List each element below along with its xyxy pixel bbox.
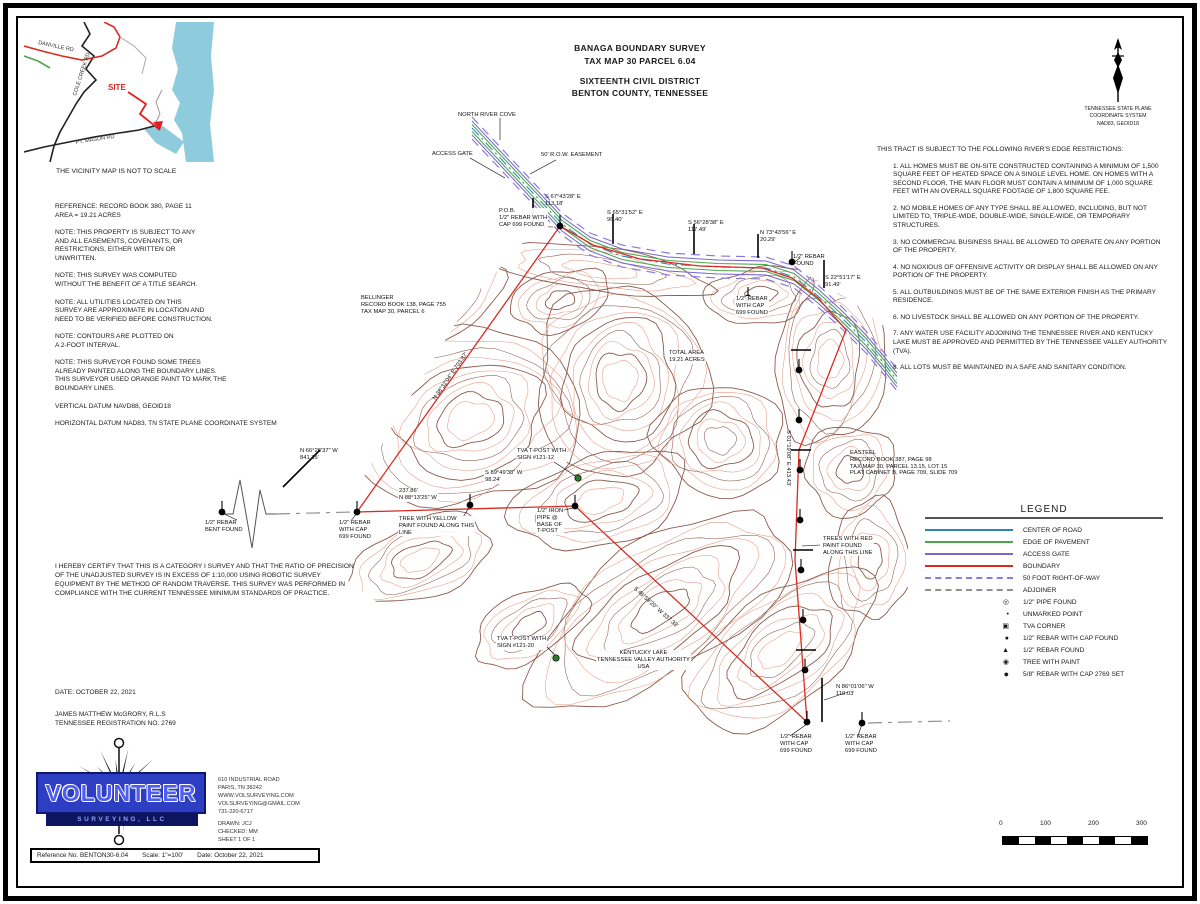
legend-label: TVA CORNER xyxy=(1023,623,1065,630)
unmarked-point-icon: • xyxy=(925,611,1013,618)
iron-pipe-label: 1/2" IRON PIPE @ BASE OF T-POST xyxy=(536,508,564,535)
access-gate-line xyxy=(925,553,1013,555)
footer-reference: Reference No. BENTON30-6.04 xyxy=(37,852,128,859)
restrictions-header: THIS TRACT IS SUBJECT TO THE FOLLOWING R… xyxy=(877,146,1169,155)
bearing-sw-label: S 89°49'38" W 98.24' xyxy=(484,470,523,484)
company-address: 610 INDUSTRIAL ROAD PARIS, TN 38242 WWW.… xyxy=(218,776,328,817)
tva-tpost2-label: TVA T-POST WITH SIGN #121-20 xyxy=(496,636,547,650)
address-line: 610 INDUSTRIAL ROAD xyxy=(218,776,328,784)
legend-label: 1/2" REBAR FOUND xyxy=(1023,647,1084,654)
rebar-south1-label: 1/2" REBAR WITH CAP 699 FOUND xyxy=(780,734,812,754)
legend-title: LEGEND xyxy=(925,504,1163,519)
pt-mason-rd-label: PT. MASON RD xyxy=(75,134,115,146)
bearing-south-label: N 86°01'06" W 110.03' xyxy=(836,684,874,698)
legend-label: 5/8" REBAR WITH CAP 2769 SET xyxy=(1023,671,1124,678)
tva-corner-icon: ▣ xyxy=(925,622,1013,630)
restriction-5: 5. ALL OUTBUILDINGS MUST BE OF THE SAME … xyxy=(893,289,1169,306)
edge-of-pavement-line xyxy=(925,541,1013,543)
surveyor-name: JAMES MATTHEW McGRORY, R.L.S xyxy=(55,710,166,719)
east-bearing-label: S 01°19'08" E 413.43' xyxy=(784,430,791,486)
footer-scale: Scale: 1"=100' xyxy=(142,852,183,859)
scale-tick-0: 0 xyxy=(999,820,1003,827)
legend-row: BOUNDARY xyxy=(925,560,1163,572)
legend-label: CENTER OF ROAD xyxy=(1023,527,1082,534)
tva-tpost1-label: TVA T-POST WITH SIGN #121-12 xyxy=(516,448,567,462)
site-label: SITE xyxy=(108,83,126,92)
date-line: DATE: OCTOBER 22, 2021 xyxy=(55,688,136,697)
trees-red-paint-label: TREES WITH RED PAINT FOUND ALONG THIS LI… xyxy=(822,536,874,556)
vicinity-road-green xyxy=(24,56,50,68)
vicinity-map: SITE DANVILLE RD COLE CREEK RD PT. MASON… xyxy=(24,22,250,162)
title-line-4: BENTON COUNTY, TENNESSEE xyxy=(490,87,790,100)
address-line: PARIS, TN 38242 xyxy=(218,784,328,792)
legend-row: ADJOINER xyxy=(925,584,1163,596)
surveyor-registration: TENNESSEE REGISTRATION NO. 2769 xyxy=(55,719,176,728)
legend: LEGEND CENTER OF ROAD EDGE OF PAVEMENT A… xyxy=(925,504,1163,680)
note-trees: NOTE: THIS SURVEYOR FOUND SOME TREES ALR… xyxy=(55,359,323,393)
note-title-search: NOTE: THIS SURVEY WAS COMPUTED WITHOUT T… xyxy=(55,272,323,289)
footer-title-bar: Reference No. BENTON30-6.04 Scale: 1"=10… xyxy=(30,848,320,863)
note-utilities: NOTE: ALL UTILITIES LOCATED ON THIS SURV… xyxy=(55,299,323,325)
rebar-cap-set-icon: ● xyxy=(925,669,1013,679)
vicinity-road-minor2 xyxy=(120,37,146,74)
total-area-label: TOTAL AREA 19.21 ACRES xyxy=(668,350,706,364)
note-contours: NOTE: CONTOURS ARE PLOTTED ON A 2-FOOT I… xyxy=(55,333,323,350)
title-spacer xyxy=(490,68,790,75)
tree-with-paint-icon: ◉ xyxy=(925,658,1013,666)
legend-label: ACCESS GATE xyxy=(1023,551,1069,558)
legend-row: ●1/2" REBAR WITH CAP FOUND xyxy=(925,632,1163,644)
address-line: WWW.VOLSURVEYING.COM xyxy=(218,792,328,800)
legend-row: ▲1/2" REBAR FOUND xyxy=(925,644,1163,656)
pipe-found-icon: ◎ xyxy=(925,598,1013,606)
legend-row: CENTER OF ROAD xyxy=(925,524,1163,536)
legend-label: 1/2" PIPE FOUND xyxy=(1023,599,1077,606)
restriction-2: 2. NO MOBILE HOMES OF ANY TYPE SHALL BE … xyxy=(893,205,1169,231)
legend-row: ◎1/2" PIPE FOUND xyxy=(925,596,1163,608)
legend-label: EDGE OF PAVEMENT xyxy=(1023,539,1090,546)
restriction-3: 3. NO COMMERCIAL BUSINESS SHALL BE ALLOW… xyxy=(893,239,1169,256)
legend-label: 1/2" REBAR WITH CAP FOUND xyxy=(1023,635,1118,642)
restriction-6: 6. NO LIVESTOCK SHALL BE ALLOWED ON ANY … xyxy=(893,314,1169,323)
legend-row: ◉TREE WITH PAINT xyxy=(925,656,1163,668)
restriction-4: 4. NO NOXIOUS OF OFFENSIVE ACTIVITY OR D… xyxy=(893,264,1169,281)
legend-row: ▣TVA CORNER xyxy=(925,620,1163,632)
pob-label: P.O.B. 1/2" REBAR WITH CAP 699 FOUND xyxy=(498,208,548,228)
footer-date: Date: October 22, 2021 xyxy=(197,852,263,859)
sheet-number: SHEET 1 OF 1 xyxy=(218,836,328,844)
scale-tick-300: 300 xyxy=(1136,820,1147,827)
bearing-label-2: S 65°31'52" E 96.40' xyxy=(607,210,643,224)
note-vertical-datum: VERTICAL DATUM NAVD88, GEOID18 xyxy=(55,403,323,412)
legend-row: 50 FOOT RIGHT-OF-WAY xyxy=(925,572,1163,584)
rebar-cap-west-label: 1/2" REBAR WITH CAP 699 FOUND xyxy=(338,520,372,540)
notes-block: REFERENCE: RECORD BOOK 380, PAGE 11 AREA… xyxy=(55,203,323,438)
legend-label: ADJOINER xyxy=(1023,587,1056,594)
bearing-label-4: N 73°43'56" E 20.29' xyxy=(760,230,796,244)
easteel-adjoiner-label: EASTEEL RECORD BOOK 387, PAGE 98 TAX MAP… xyxy=(850,450,958,477)
vicinity-caption: THE VICINITY MAP IS NOT TO SCALE xyxy=(56,168,176,175)
legend-row: •UNMARKED POINT xyxy=(925,608,1163,620)
rebar-south2-label: 1/2" REBAR WITH CAP 699 FOUND xyxy=(845,734,877,754)
title-line-3: SIXTEENTH CIVIL DISTRICT xyxy=(490,75,790,88)
scale-tick-200: 200 xyxy=(1088,820,1099,827)
legend-label: 50 FOOT RIGHT-OF-WAY xyxy=(1023,575,1100,582)
bearing-west-label: N 66°28'37" W 841.35' xyxy=(300,448,338,462)
title-line-2: TAX MAP 30 PARCEL 6.04 xyxy=(490,55,790,68)
drawing-credits: DRAWN: JCJ CHECKED: MM SHEET 1 OF 1 xyxy=(218,820,328,844)
drawn-by: DRAWN: JCJ xyxy=(218,820,328,828)
legend-row: EDGE OF PAVEMENT xyxy=(925,536,1163,548)
row-easement-label: 50' R.O.W. EASEMENT xyxy=(541,152,602,159)
boundary-line xyxy=(925,565,1013,567)
legend-row: ●5/8" REBAR WITH CAP 2769 SET xyxy=(925,668,1163,680)
tree-yellow-paint-label: TREE WITH YELLOW PAINT FOUND ALONG THIS … xyxy=(398,516,475,536)
rebar-cap-ne-label: 1/2" REBAR WITH CAP 699 FOUND xyxy=(735,296,769,316)
access-gate-label: ACCESS GATE xyxy=(432,151,473,158)
legend-label: BOUNDARY xyxy=(1023,563,1060,570)
rebar-bent-label: 1/2" REBAR BENT FOUND xyxy=(205,520,243,534)
legend-label: UNMARKED POINT xyxy=(1023,611,1083,618)
restriction-8: 8. ALL LOTS MUST BE MAINTAINED IN A SAFE… xyxy=(893,364,1169,373)
rebar-found-label: 1/2" REBAR FOUND xyxy=(793,254,825,268)
bearing-label-5: S 22°51'17" E 91.49' xyxy=(825,275,861,289)
kentucky-lake-label: KENTUCKY LAKE TENNESSEE VALLEY AUTHORITY… xyxy=(596,650,691,670)
logo-box: VOLUNTEER xyxy=(36,772,206,814)
center-of-road-line xyxy=(925,529,1013,531)
title-line-1: BANAGA BOUNDARY SURVEY xyxy=(490,42,790,55)
restrictions-block: THIS TRACT IS SUBJECT TO THE FOLLOWING R… xyxy=(877,146,1169,373)
checked-by: CHECKED: MM xyxy=(218,828,328,836)
bearing-label-3: S 56°28'38" E 117.49' xyxy=(688,220,724,234)
rebar-found-icon: ▲ xyxy=(925,647,1013,654)
road-name-label: NORTH RIVER COVE xyxy=(458,112,516,119)
right-of-way-line xyxy=(925,577,1013,579)
note-reference: REFERENCE: RECORD BOOK 380, PAGE 11 AREA… xyxy=(55,203,323,220)
logo-subname: SURVEYING, LLC xyxy=(46,812,198,826)
logo-name: VOLUNTEER xyxy=(46,780,197,807)
title-block: BANAGA BOUNDARY SURVEY TAX MAP 30 PARCEL… xyxy=(490,42,790,100)
bearing-mid-label: 237.86' N 88°13'25" W xyxy=(398,488,438,502)
survey-sheet: SITE DANVILLE RD COLE CREEK RD PT. MASON… xyxy=(0,0,1200,904)
adjoiner-line xyxy=(925,589,1013,591)
north-arrow-caption: TENNESSEE STATE PLANE COORDINATE SYSTEM … xyxy=(1072,106,1164,128)
legend-row: ACCESS GATE xyxy=(925,548,1163,560)
scale-tick-100: 100 xyxy=(1040,820,1051,827)
scale-bar xyxy=(1002,836,1148,845)
note-horizontal-datum: HORIZONTAL DATUM NAD83, TN STATE PLANE C… xyxy=(55,420,323,429)
restriction-1: 1. ALL HOMES MUST BE ON-SITE CONSTRUCTED… xyxy=(893,163,1169,197)
note-easements: NOTE: THIS PROPERTY IS SUBJECT TO ANY AN… xyxy=(55,229,323,263)
restriction-7: 7. ANY WATER USE FACILITY ADJOINING THE … xyxy=(893,330,1169,356)
legend-label: TREE WITH PAINT xyxy=(1023,659,1080,666)
north-arrow-icon xyxy=(1100,38,1136,104)
address-line: VOLSURVEYING@GMAIL.COM xyxy=(218,800,328,808)
bearing-label-1: S 67°43'28" E 113.18' xyxy=(545,194,581,208)
certification-text: I HEREBY CERTIFY THAT THIS IS A CATEGORY… xyxy=(55,563,355,599)
vicinity-road-minor xyxy=(154,90,162,126)
bellinger-adjoiner-label: BELLINGER RECORD BOOK 138, PAGE 755 TAX … xyxy=(360,295,447,315)
address-line: 731-220-6717 xyxy=(218,808,328,816)
rebar-cap-found-icon: ● xyxy=(925,635,1013,642)
